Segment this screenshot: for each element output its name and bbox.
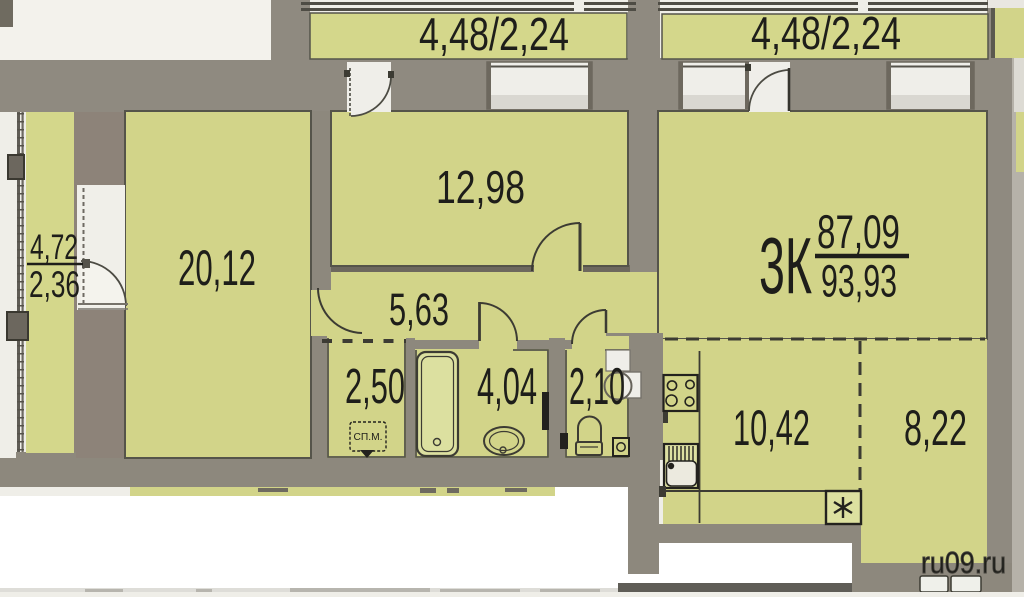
svg-text:3К: 3К <box>759 221 812 310</box>
svg-text:8,22: 8,22 <box>904 400 967 456</box>
svg-text:4,48/2,24: 4,48/2,24 <box>751 7 901 59</box>
svg-text:2,10: 2,10 <box>569 358 625 416</box>
svg-text:4,04: 4,04 <box>477 358 537 416</box>
svg-text:2,36: 2,36 <box>29 264 80 305</box>
svg-text:10,42: 10,42 <box>733 400 810 456</box>
svg-text:СП.М.: СП.М. <box>354 432 383 443</box>
svg-text:20,12: 20,12 <box>178 240 256 296</box>
svg-text:93,93: 93,93 <box>821 256 897 307</box>
svg-text:87,09: 87,09 <box>817 205 900 258</box>
svg-text:4,72: 4,72 <box>30 228 78 267</box>
svg-text:ru09.ru: ru09.ru <box>921 545 1006 580</box>
svg-text:4,48/2,24: 4,48/2,24 <box>419 8 569 60</box>
svg-text:2,50: 2,50 <box>345 360 405 414</box>
svg-text:12,98: 12,98 <box>436 161 525 213</box>
svg-text:5,63: 5,63 <box>389 284 449 335</box>
